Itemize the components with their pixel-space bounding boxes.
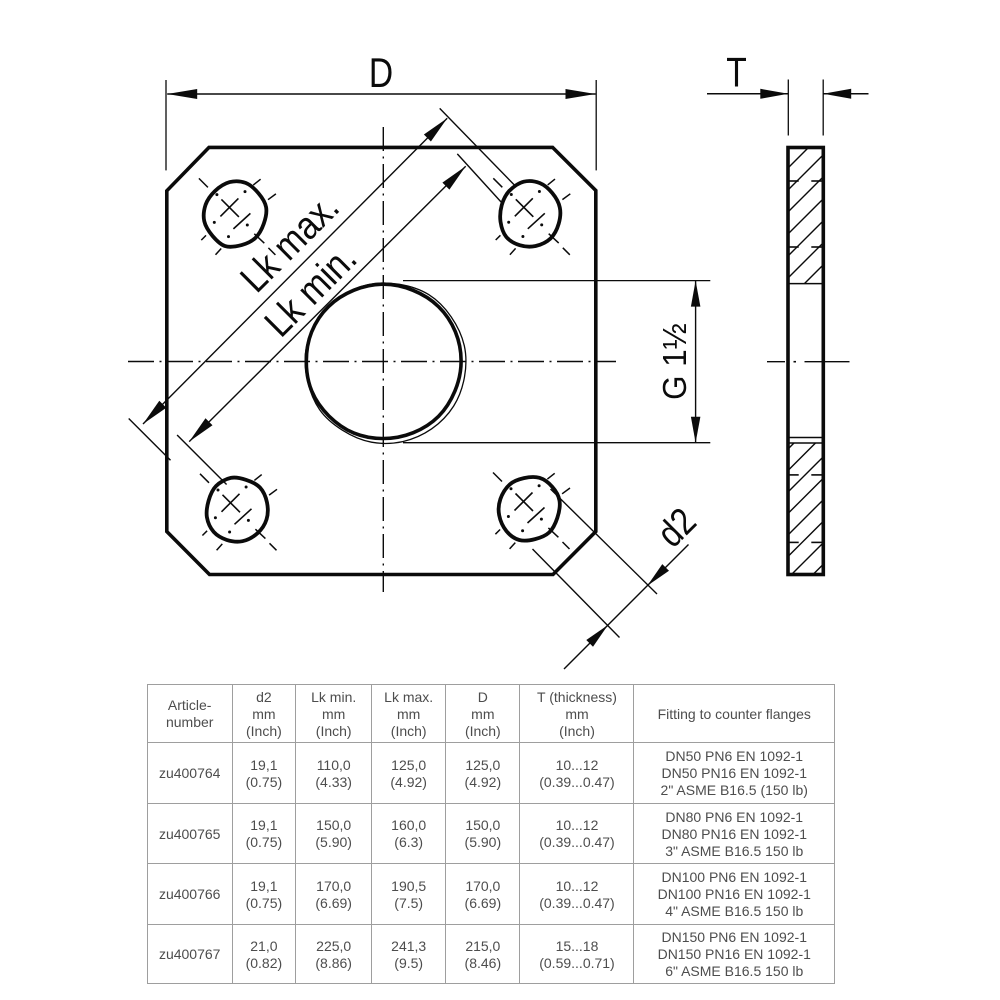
svg-text:T: T — [726, 50, 747, 96]
svg-text:G 1½: G 1½ — [656, 323, 693, 400]
svg-text:D: D — [369, 50, 393, 96]
svg-text:d2: d2 — [649, 500, 704, 555]
